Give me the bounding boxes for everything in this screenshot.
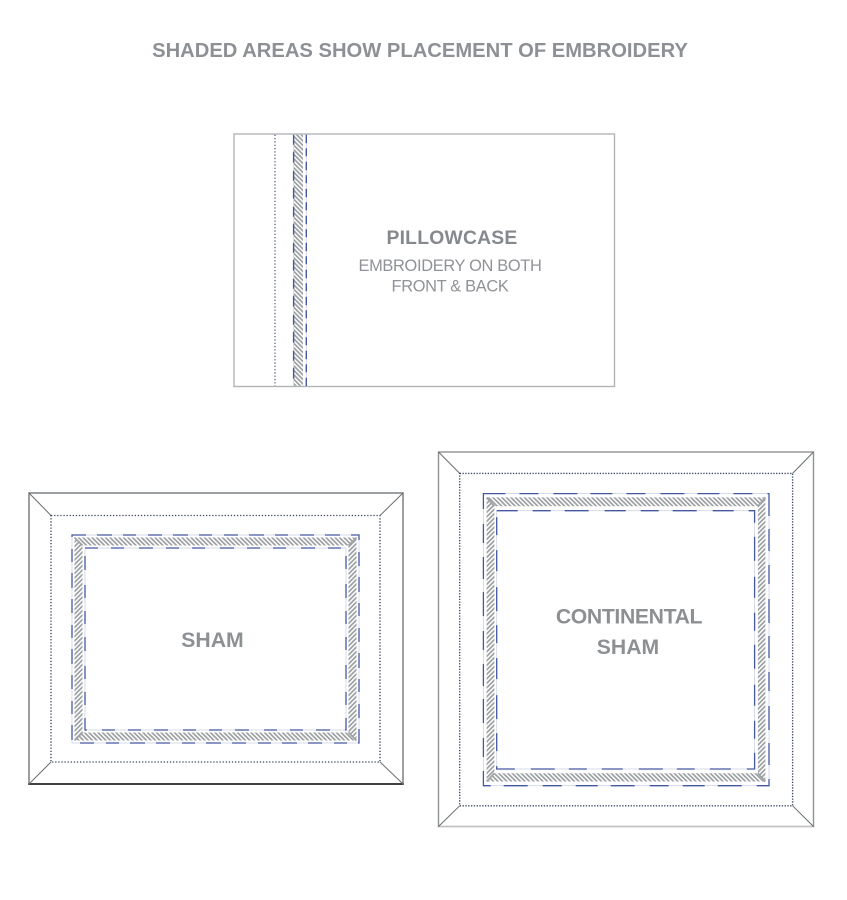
svg-text:SHAM: SHAM [181,629,243,652]
svg-text:EMBROIDERY ON BOTH: EMBROIDERY ON BOTH [358,257,541,275]
svg-text:PILLOWCASE: PILLOWCASE [386,228,517,249]
svg-text:FRONT & BACK: FRONT & BACK [392,278,509,296]
svg-text:SHAM: SHAM [597,636,659,659]
svg-text:SHADED AREAS SHOW PLACEMENT OF: SHADED AREAS SHOW PLACEMENT OF EMBROIDER… [152,40,688,62]
svg-text:CONTINENTAL: CONTINENTAL [556,605,703,628]
